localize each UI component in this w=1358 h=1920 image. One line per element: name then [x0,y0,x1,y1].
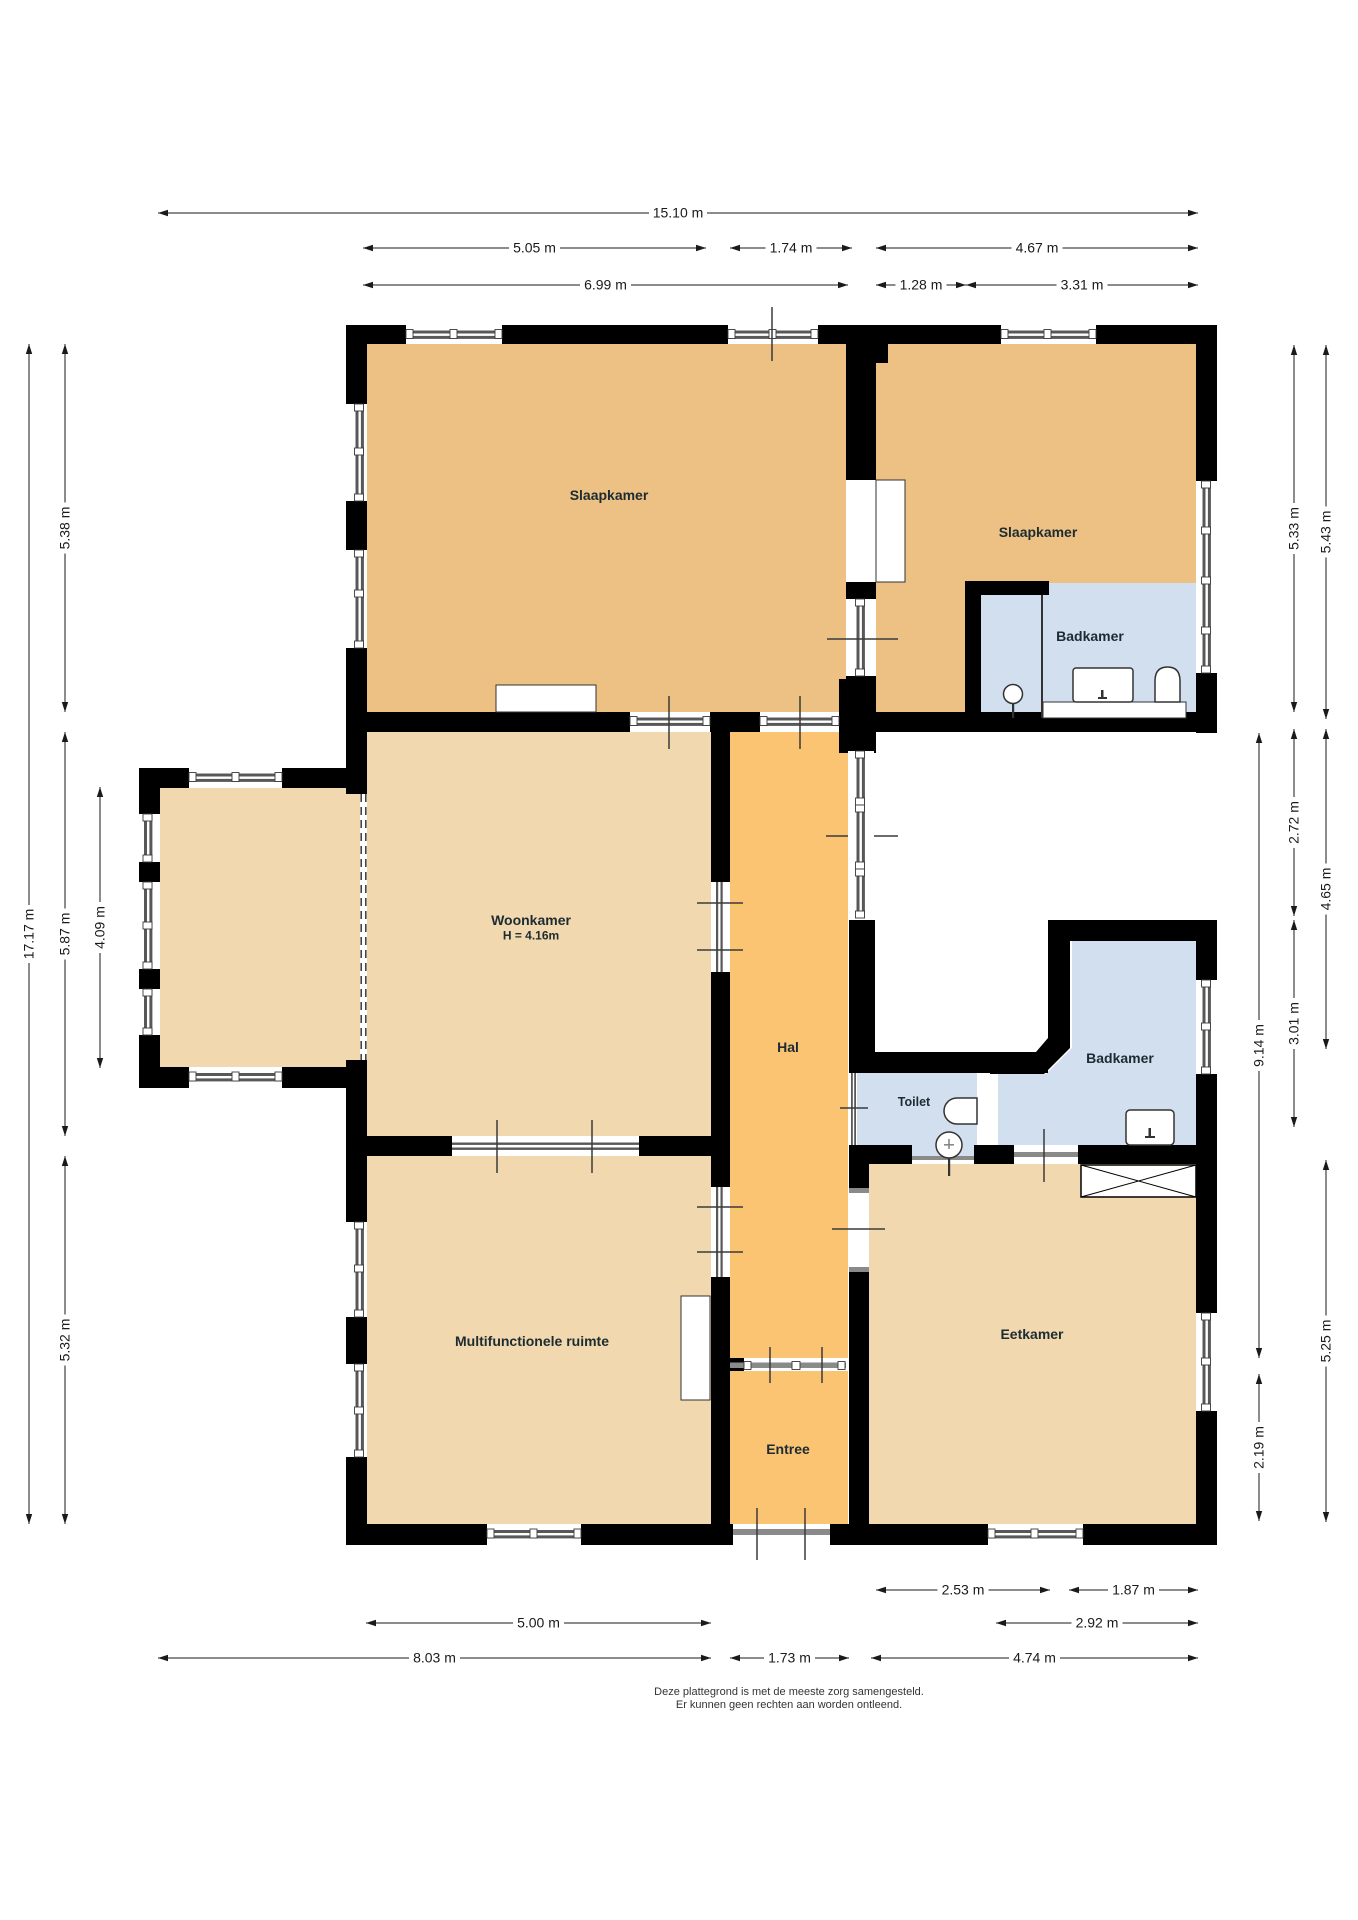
svg-text:3.31 m: 3.31 m [1061,277,1104,293]
svg-text:4.74 m: 4.74 m [1013,1650,1056,1666]
svg-text:6.99 m: 6.99 m [584,277,627,293]
svg-text:Slaapkamer: Slaapkamer [570,487,649,503]
svg-text:H = 4.16m: H = 4.16m [503,929,559,943]
svg-text:4.67 m: 4.67 m [1016,240,1059,256]
svg-text:3.01 m: 3.01 m [1286,1002,1302,1045]
svg-text:Eetkamer: Eetkamer [1000,1326,1064,1342]
svg-text:15.10 m: 15.10 m [653,205,704,221]
svg-text:Badkamer: Badkamer [1056,628,1124,644]
svg-text:Hal: Hal [777,1039,799,1055]
svg-text:5.87 m: 5.87 m [57,913,73,956]
svg-text:5.00 m: 5.00 m [517,1615,560,1631]
svg-text:1.74 m: 1.74 m [770,240,813,256]
svg-text:8.03 m: 8.03 m [413,1650,456,1666]
svg-text:Multifunctionele ruimte: Multifunctionele ruimte [455,1333,609,1349]
svg-text:1.87 m: 1.87 m [1112,1582,1155,1598]
svg-text:Deze plattegrond is met de mee: Deze plattegrond is met de meeste zorg s… [654,1686,924,1698]
svg-text:2.72 m: 2.72 m [1286,801,1302,844]
svg-text:5.05 m: 5.05 m [513,240,556,256]
svg-text:5.38 m: 5.38 m [57,507,73,550]
svg-text:Toilet: Toilet [898,1095,931,1109]
svg-text:5.43 m: 5.43 m [1318,511,1334,554]
svg-text:1.28 m: 1.28 m [900,277,943,293]
svg-text:Badkamer: Badkamer [1086,1050,1154,1066]
svg-text:2.92 m: 2.92 m [1076,1615,1119,1631]
svg-text:Entree: Entree [766,1441,810,1457]
svg-text:5.32 m: 5.32 m [57,1319,73,1362]
svg-text:Woonkamer: Woonkamer [491,912,571,928]
svg-text:4.09 m: 4.09 m [92,906,108,949]
svg-text:5.25 m: 5.25 m [1318,1320,1334,1363]
svg-text:1.73 m: 1.73 m [768,1650,811,1666]
svg-text:17.17 m: 17.17 m [21,909,37,960]
svg-text:2.53 m: 2.53 m [942,1582,985,1598]
svg-text:4.65 m: 4.65 m [1318,868,1334,911]
svg-text:Slaapkamer: Slaapkamer [999,524,1078,540]
svg-text:2.19 m: 2.19 m [1251,1426,1267,1469]
svg-text:5.33 m: 5.33 m [1286,507,1302,550]
svg-text:9.14 m: 9.14 m [1251,1024,1267,1067]
svg-text:Er kunnen geen rechten aan wor: Er kunnen geen rechten aan worden ontlee… [676,1699,902,1711]
